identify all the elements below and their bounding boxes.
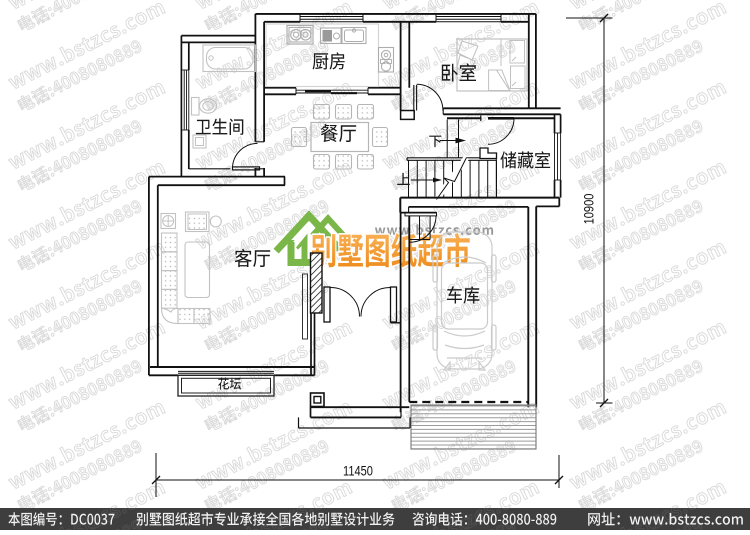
svg-text:10900: 10900 xyxy=(581,194,596,225)
svg-text:11450: 11450 xyxy=(343,463,373,478)
